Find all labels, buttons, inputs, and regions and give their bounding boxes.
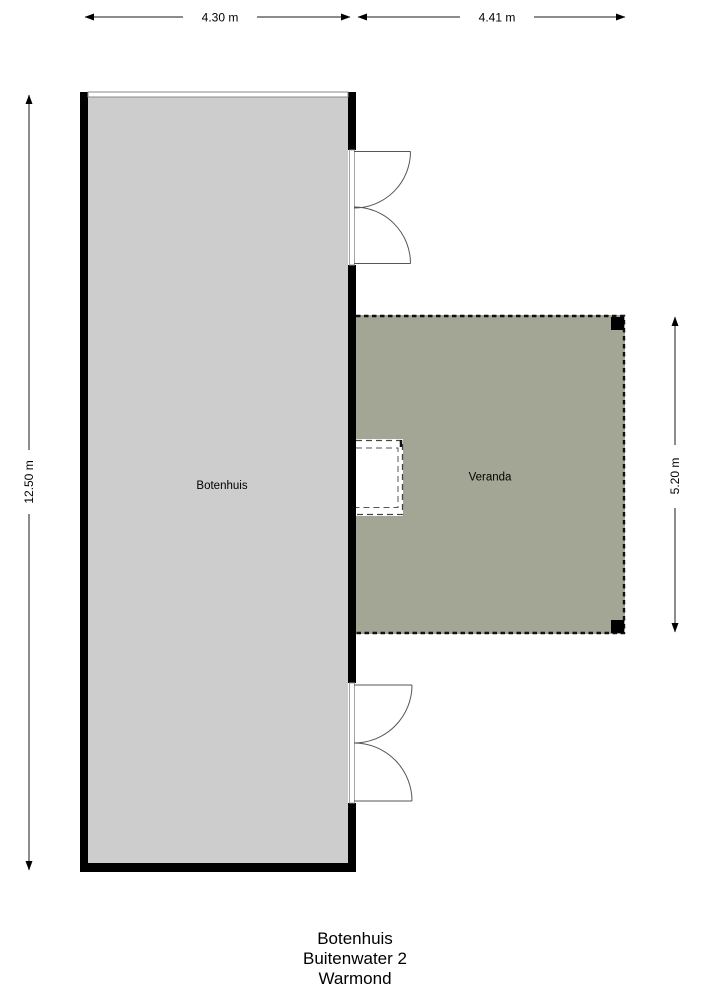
door-center-opening xyxy=(356,439,403,516)
door-top-swing-lower xyxy=(354,207,411,264)
door-top-swing-upper xyxy=(354,152,411,209)
title-block: Botenhuis Buitenwater 2 Warmond xyxy=(303,929,407,988)
wall-bottom xyxy=(80,863,356,872)
door-top-frame xyxy=(350,150,355,265)
door-top xyxy=(350,150,411,265)
dimension-label-boathouse-height: 12.50 m xyxy=(22,460,36,503)
title-line-building: Botenhuis xyxy=(317,929,393,948)
dimension-label-boathouse-width: 4.30 m xyxy=(202,11,239,25)
title-line-city: Warmond xyxy=(318,969,391,988)
title-line-address: Buitenwater 2 xyxy=(303,949,407,968)
floor-plan-page: 4.30 m 4.41 m 12.50 m 5.20 m xyxy=(0,0,707,1000)
veranda-post-top xyxy=(611,317,624,330)
wall-right-middle xyxy=(348,265,356,683)
door-bottom-swing-upper xyxy=(354,685,412,743)
room-label-veranda: Veranda xyxy=(469,472,512,484)
wall-left xyxy=(80,92,88,872)
dimension-label-veranda-width: 4.41 m xyxy=(479,11,516,25)
room-label-boathouse: Botenhuis xyxy=(196,480,247,492)
dimension-label-veranda-height: 5.20 m xyxy=(668,458,682,495)
floor-plan-canvas: 4.30 m 4.41 m 12.50 m 5.20 m xyxy=(0,0,707,1000)
wall-right-lower xyxy=(348,803,356,863)
veranda-post-bottom xyxy=(611,620,624,633)
wall-right-upper xyxy=(348,92,356,150)
door-bottom-frame xyxy=(350,683,355,803)
door-center-dashed xyxy=(356,439,403,516)
door-bottom xyxy=(350,683,413,803)
door-bottom-swing-lower xyxy=(354,743,412,801)
window-top xyxy=(88,92,348,97)
